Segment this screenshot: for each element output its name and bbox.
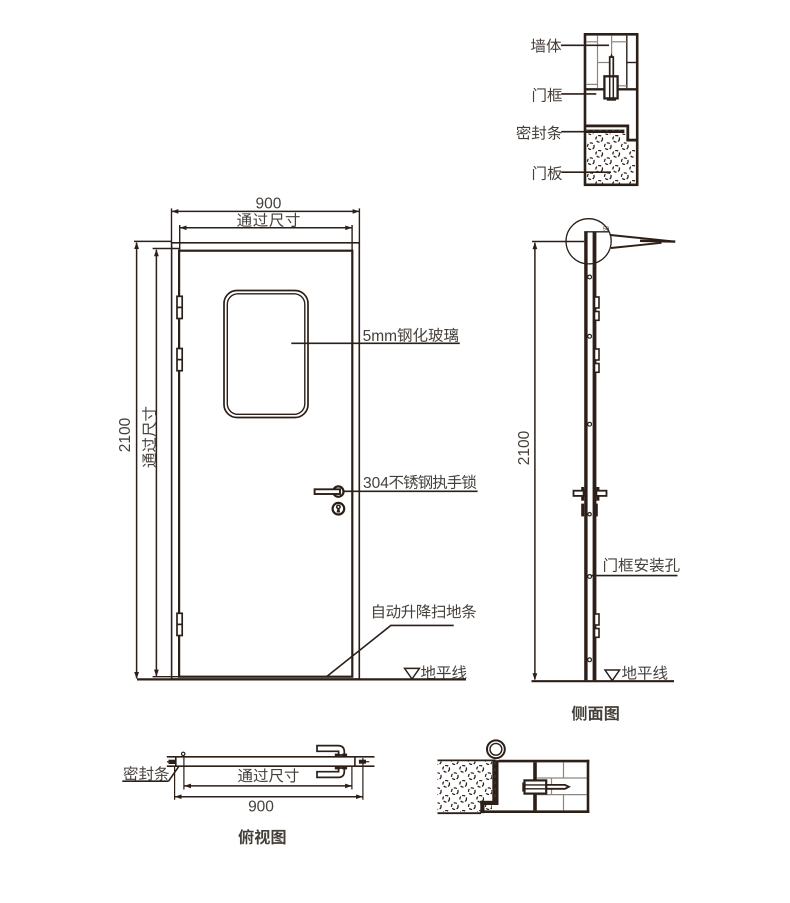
svg-text:900: 900 xyxy=(248,799,274,816)
svg-text:900: 900 xyxy=(255,196,281,213)
svg-text:2100: 2100 xyxy=(516,430,533,465)
svg-text:5mm: 5mm xyxy=(363,328,397,345)
svg-text:2100: 2100 xyxy=(117,417,134,452)
svg-text:304: 304 xyxy=(363,475,389,492)
